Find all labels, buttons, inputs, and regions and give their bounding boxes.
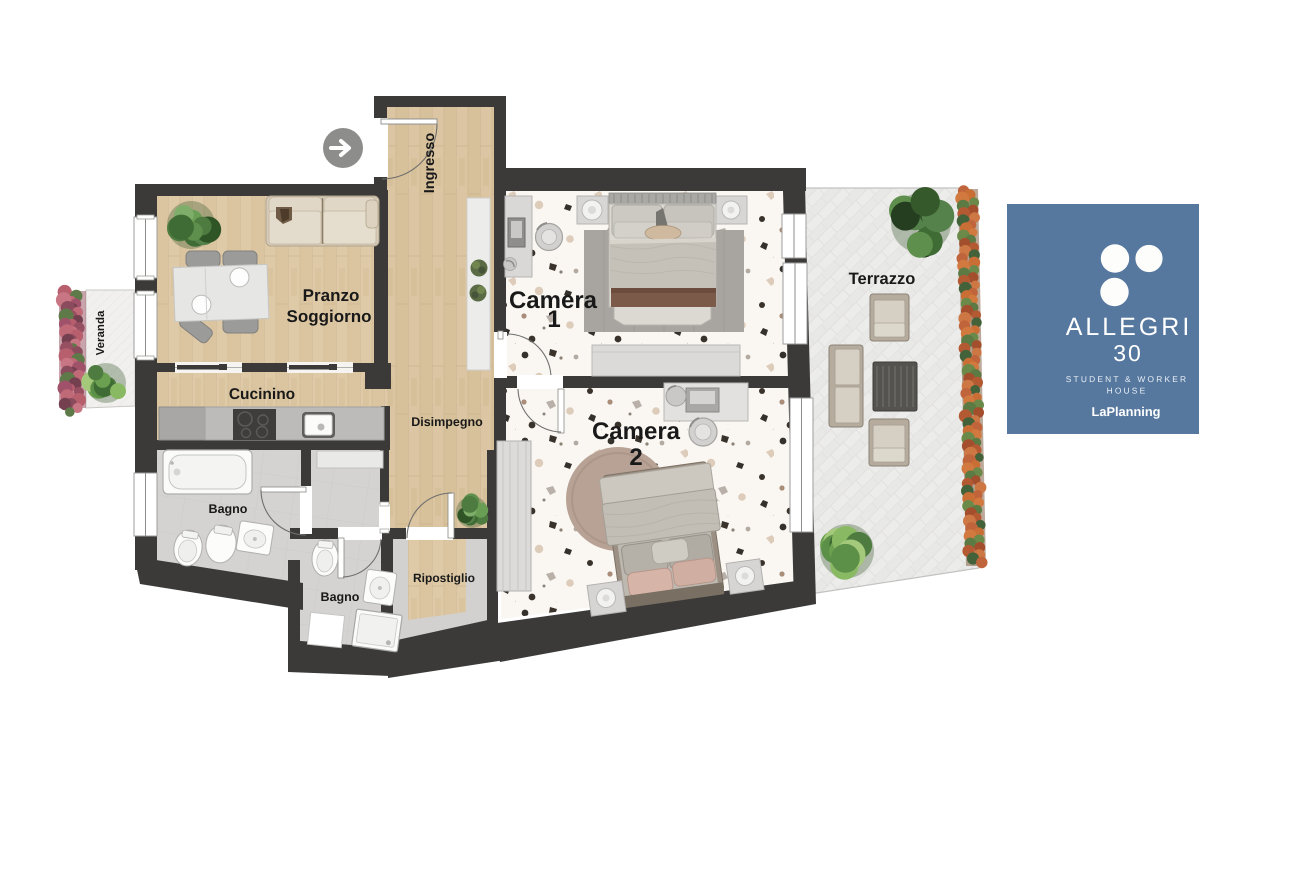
svg-text:Disimpegno: Disimpegno	[411, 415, 483, 429]
svg-text:Cucinino: Cucinino	[229, 386, 295, 403]
svg-text:HOUSE: HOUSE	[1107, 386, 1148, 396]
svg-text:Camera: Camera	[592, 418, 681, 445]
svg-text:Ingresso: Ingresso	[422, 133, 438, 194]
svg-text:Bagno: Bagno	[209, 502, 248, 516]
svg-text:Bagno: Bagno	[321, 590, 360, 604]
svg-text:Ripostiglio: Ripostiglio	[413, 571, 475, 585]
svg-text:LaPlanning: LaPlanning	[1092, 404, 1161, 419]
svg-text:Soggiorno: Soggiorno	[287, 307, 372, 326]
svg-text:1: 1	[547, 306, 560, 333]
svg-text:Veranda: Veranda	[95, 310, 107, 355]
svg-text:30: 30	[1113, 340, 1143, 366]
svg-text:STUDENT & WORKER: STUDENT & WORKER	[1066, 374, 1189, 384]
svg-text:Terrazzo: Terrazzo	[849, 270, 916, 288]
svg-text:Pranzo: Pranzo	[303, 286, 360, 305]
svg-text:2: 2	[629, 444, 642, 471]
svg-text:ALLEGRI: ALLEGRI	[1066, 313, 1193, 341]
